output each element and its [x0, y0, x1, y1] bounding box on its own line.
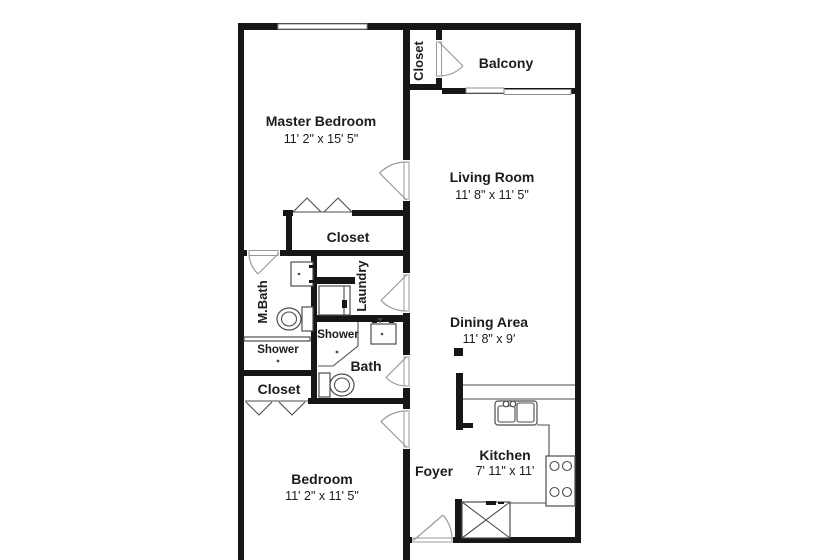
- wall-balcony-closet-bottom: [403, 84, 442, 90]
- balcony-rail-window-left: [466, 88, 504, 93]
- master-bedroom-label: Master Bedroom: [266, 113, 376, 129]
- floor-plan-page: Master Bedroom 11' 2" x 15' 5" Living Ro…: [0, 0, 820, 560]
- laundry-door-panel: [404, 275, 409, 311]
- living-room-dims: 11' 8" x 11' 5": [455, 188, 529, 202]
- mbath-door-panel: [249, 251, 278, 256]
- wall-hall-top-right: [280, 250, 403, 256]
- bath-sink-drain-icon: [381, 333, 384, 336]
- bedroom-door-panel: [404, 411, 409, 447]
- mbath-sink-drain-icon: [298, 273, 301, 276]
- bath-sink-icon: [371, 324, 396, 344]
- closet-lower-label: Closet: [258, 381, 301, 397]
- entry-door-panel: [413, 538, 452, 542]
- closet-mid-label: Closet: [327, 229, 370, 245]
- wall-bedroom-top: [308, 398, 403, 404]
- bath-label: Bath: [350, 358, 381, 374]
- laundry-label: Laundry: [354, 260, 369, 312]
- wall-spine-mid3: [403, 388, 410, 409]
- mbath-shower-drain-icon: [277, 360, 280, 363]
- master-bedroom-dims: 11' 2" x 15' 5": [284, 132, 359, 146]
- wall-closet-mid-top-right: [352, 210, 403, 216]
- kitchen-faucet-icon: [510, 401, 516, 407]
- dining-area-dims: 11' 8" x 9': [463, 332, 516, 346]
- balcony-closet-door-panel: [437, 42, 442, 76]
- bath-toilet-tank-icon: [319, 373, 330, 397]
- foyer-label: Foyer: [415, 463, 454, 479]
- mbath-toilet-tank-icon: [302, 307, 313, 331]
- wall-spine-mid1: [403, 201, 410, 273]
- mbath-faucet-icon: [309, 265, 315, 268]
- wall-balcony-closet-right-upper: [436, 23, 442, 42]
- bath-door-panel: [404, 357, 409, 386]
- kitchen-faucet-icon: [503, 401, 509, 407]
- master-door-panel: [404, 162, 409, 199]
- wall-spine-lower: [403, 449, 410, 560]
- wall-kitchen-stub-cap: [463, 423, 473, 428]
- wall-kitchen-corner-block: [454, 348, 463, 356]
- balcony-rail-window-right: [504, 90, 571, 95]
- refrigerator-handle-icon: [486, 501, 496, 505]
- mbath-shower-label: Shower: [257, 344, 299, 356]
- wall-kitchen-stub-lower: [455, 499, 462, 538]
- wall-mbath-shower-bottom: [238, 370, 312, 376]
- wall-kitchen-stub-upper: [456, 373, 463, 430]
- bath-faucet-icon: [389, 320, 394, 323]
- wall-closet-mid-left: [286, 210, 292, 256]
- balcony-label: Balcony: [479, 55, 534, 71]
- wall-spine-upper: [403, 23, 410, 160]
- wall-spine-mid2: [403, 313, 410, 355]
- floor-plan-drawing: Master Bedroom 11' 2" x 15' 5" Living Ro…: [0, 0, 820, 560]
- mbath-toilet-bowl-icon: [277, 308, 301, 330]
- wall-laundry-counter-bar: [317, 277, 355, 284]
- kitchen-label: Kitchen: [479, 447, 530, 463]
- bath-shower-label: Shower: [317, 329, 359, 341]
- bedroom-label: Bedroom: [291, 471, 352, 487]
- bath-faucet-icon: [372, 320, 377, 323]
- refrigerator-handle-icon: [498, 502, 504, 504]
- wall-left-exterior: [238, 23, 244, 560]
- kitchen-dims: 7' 11" x 11': [476, 464, 535, 478]
- wall-right-exterior: [575, 23, 581, 543]
- bedroom-dims: 11' 2" x 11' 5": [285, 489, 359, 503]
- bath-shower-drain-icon: [336, 351, 339, 354]
- dining-area-label: Dining Area: [450, 314, 528, 330]
- mbath-label: M.Bath: [255, 280, 270, 323]
- wall-hall-top-left: [238, 250, 248, 256]
- balcony-closet-label: Closet: [411, 40, 426, 80]
- master-bedroom-window: [278, 24, 367, 29]
- living-room-label: Living Room: [450, 169, 535, 185]
- mbath-faucet-icon: [309, 280, 315, 283]
- mbath-shower-glass-icon: [244, 337, 310, 341]
- washer-handle-icon: [342, 300, 347, 308]
- bath-toilet-bowl-icon: [330, 374, 354, 396]
